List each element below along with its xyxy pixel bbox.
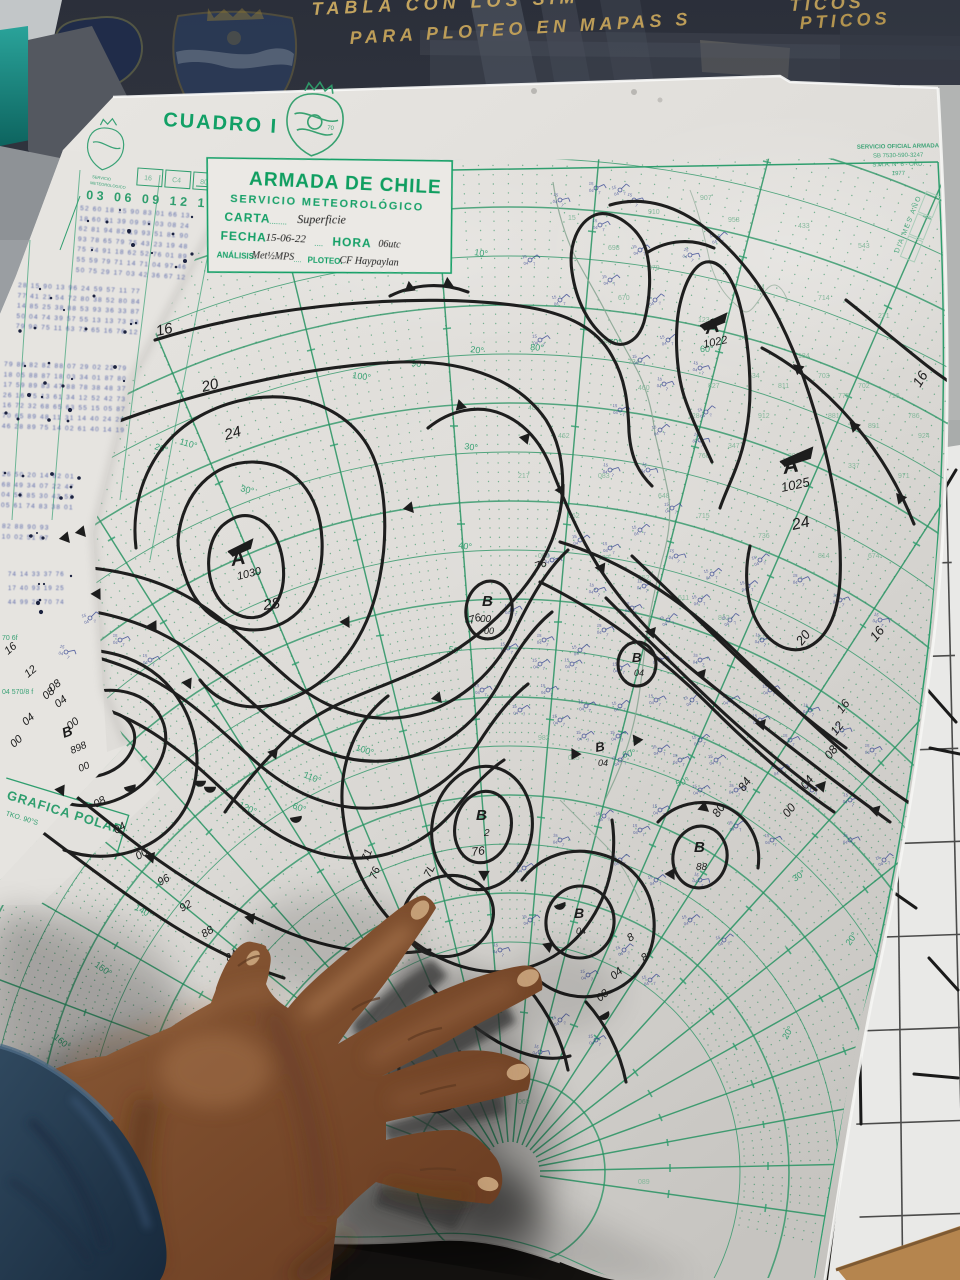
svg-text:337: 337 [848, 463, 860, 470]
svg-text:958: 958 [728, 217, 740, 224]
svg-text:16: 16 [144, 175, 152, 183]
svg-text:775: 775 [838, 393, 850, 400]
svg-text:703: 703 [818, 373, 830, 380]
svg-text:C4: C4 [172, 177, 182, 185]
svg-text:910: 910 [648, 209, 660, 216]
svg-text:06utc: 06utc [378, 239, 401, 251]
svg-text:....: .... [293, 257, 301, 264]
svg-text:891: 891 [868, 423, 880, 430]
svg-text:881: 881 [828, 413, 840, 420]
svg-text:912: 912 [758, 413, 770, 420]
svg-text:B: B [482, 593, 493, 610]
svg-text:Met½MPS: Met½MPS [250, 250, 294, 263]
svg-text:20°: 20° [470, 344, 485, 356]
svg-text:74 14 33 37 76: 74 14 33 37 76 [8, 572, 65, 578]
svg-text:698: 698 [608, 245, 620, 252]
svg-text:....: .... [314, 239, 323, 248]
svg-text:217: 217 [518, 473, 530, 480]
svg-text:715: 715 [698, 513, 710, 520]
svg-text:907: 907 [700, 195, 712, 202]
svg-text:76: 76 [470, 843, 485, 859]
svg-text:........: ........ [269, 217, 287, 227]
svg-text:648: 648 [658, 493, 670, 500]
svg-text:ANÁLISIS.: ANÁLISIS. [216, 250, 256, 261]
svg-text:10°: 10° [474, 247, 489, 259]
svg-text:271: 271 [878, 313, 890, 320]
svg-text:00: 00 [480, 614, 492, 625]
svg-text:PLOTEO.: PLOTEO. [307, 256, 342, 267]
svg-text:347: 347 [728, 443, 740, 450]
svg-text:B: B [476, 807, 487, 824]
svg-text:2: 2 [483, 828, 490, 839]
svg-text:089: 089 [638, 1179, 650, 1186]
svg-text:70: 70 [327, 125, 335, 132]
svg-text:811: 811 [778, 383, 789, 390]
svg-text:433: 433 [798, 223, 810, 230]
svg-text:1977: 1977 [892, 171, 906, 177]
svg-text:04: 04 [598, 758, 608, 768]
svg-text:88: 88 [696, 862, 708, 873]
svg-text:B: B [574, 905, 584, 921]
svg-text:04: 04 [576, 926, 586, 936]
svg-text:814: 814 [818, 553, 830, 560]
svg-text:04: 04 [634, 668, 644, 678]
svg-text:786: 786 [908, 413, 920, 420]
svg-text:462: 462 [558, 433, 570, 440]
svg-text:CARTA: CARTA [224, 210, 271, 226]
svg-text:HORA: HORA [332, 235, 372, 251]
svg-text:674: 674 [868, 553, 880, 560]
svg-text:543: 543 [858, 243, 870, 250]
svg-text:S.M.A. N° 6 - ORD.: S.M.A. N° 6 - ORD. [872, 162, 924, 169]
svg-text:B: B [694, 839, 705, 856]
svg-text:702: 702 [858, 383, 870, 390]
svg-text:30°: 30° [464, 441, 479, 453]
svg-text:B: B [632, 650, 641, 665]
svg-text:15-06-22: 15-06-22 [265, 232, 306, 246]
svg-text:FECHA: FECHA [220, 229, 267, 245]
svg-text:04 570/8 f: 04 570/8 f [2, 689, 33, 696]
svg-text:736: 736 [758, 533, 770, 540]
svg-text:982: 982 [538, 735, 550, 742]
svg-text:460: 460 [638, 385, 650, 392]
svg-text:SB 7530-590-3247: SB 7530-590-3247 [873, 153, 924, 160]
svg-text:670: 670 [618, 295, 630, 302]
svg-text:971: 971 [898, 473, 910, 480]
svg-text:15: 15 [568, 215, 576, 222]
svg-text:924: 924 [918, 433, 930, 440]
svg-text:28: 28 [261, 595, 282, 614]
svg-text:17 40 93 19 25: 17 40 93 19 25 [8, 586, 65, 592]
svg-text:00: 00 [484, 626, 494, 636]
svg-text:184: 184 [798, 353, 810, 360]
svg-text:827: 827 [708, 383, 720, 390]
svg-text:714: 714 [818, 295, 830, 302]
svg-text:40°: 40° [458, 540, 473, 552]
svg-text:716: 716 [888, 393, 900, 400]
svg-text:Superficie: Superficie [297, 212, 346, 227]
